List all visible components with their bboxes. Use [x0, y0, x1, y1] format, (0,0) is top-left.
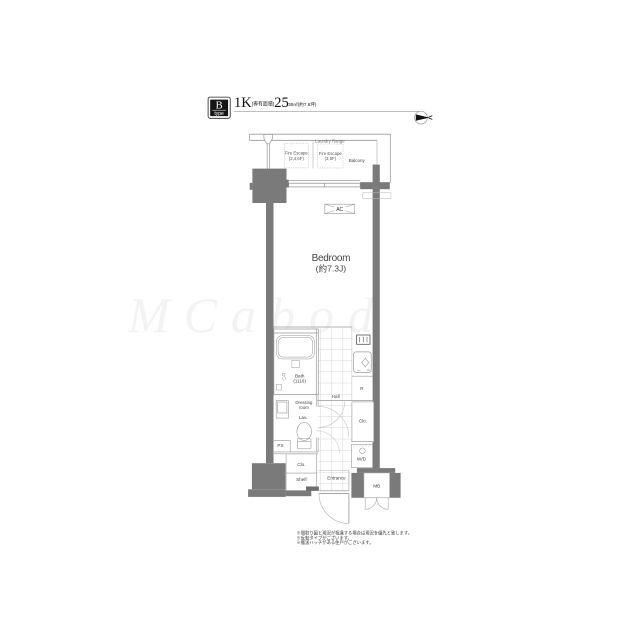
svg-text:MCabod: MCabod [127, 287, 387, 343]
svg-text:Clo.: Clo. [297, 462, 305, 467]
svg-text:1K: 1K [234, 95, 252, 111]
svg-text:.38㎡(約7.6坪): .38㎡(約7.6坪) [287, 101, 317, 108]
svg-text:※搬送ハッチがある住戸がございます。: ※搬送ハッチがある住戸がございます。 [297, 539, 374, 546]
svg-text:Shelf: Shelf [296, 477, 307, 482]
svg-text:Bedroom: Bedroom [312, 253, 350, 264]
svg-text:(1116): (1116) [293, 379, 306, 384]
svg-text:(約7.3J): (約7.3J) [316, 262, 347, 273]
svg-text:Hall: Hall [332, 394, 340, 399]
svg-text:type: type [214, 111, 224, 117]
svg-text:(2,4,6F): (2,4,6F) [289, 156, 305, 161]
svg-text:AC: AC [336, 207, 343, 213]
svg-text:Lav.: Lav. [299, 415, 307, 420]
svg-text:Clo.: Clo. [359, 418, 367, 423]
svg-text:room: room [299, 405, 309, 410]
svg-text:Balcony: Balcony [349, 158, 366, 163]
svg-text:W/D: W/D [357, 456, 367, 461]
svg-text:[専有面積]: [専有面積] [252, 100, 275, 107]
svg-text:Entrance: Entrance [327, 476, 346, 481]
svg-text:(3,5F): (3,5F) [325, 156, 337, 161]
svg-text:Laundry Range: Laundry Range [315, 139, 345, 144]
svg-text:PS: PS [277, 443, 283, 448]
svg-text:MB: MB [373, 483, 380, 489]
